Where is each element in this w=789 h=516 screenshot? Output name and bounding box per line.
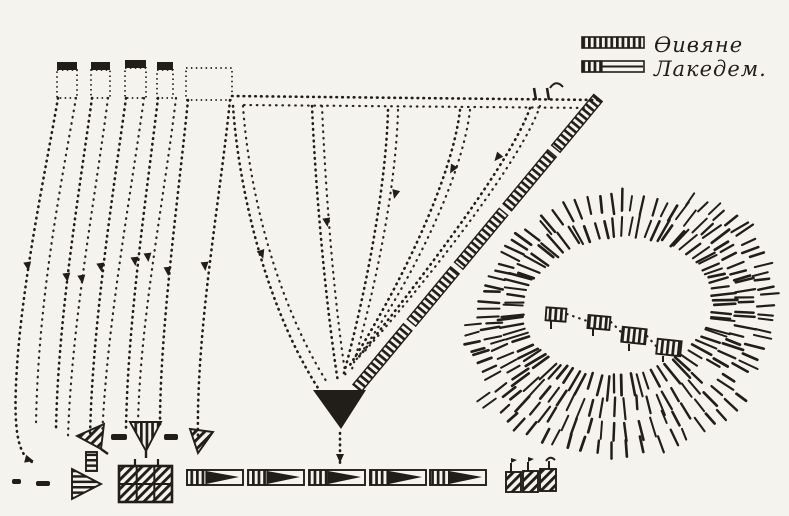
unit-arrow-right xyxy=(72,469,101,499)
hachure-stroke xyxy=(601,422,602,439)
hachure-stroke xyxy=(757,305,774,306)
hachure-stroke xyxy=(478,358,492,363)
direction-arrowhead xyxy=(322,217,331,227)
hachure-stroke xyxy=(605,221,609,238)
route-path xyxy=(243,106,328,384)
hachure-stroke xyxy=(624,423,626,441)
legend-label-thebans: Ѳивяне xyxy=(654,33,743,57)
hachure-stroke xyxy=(568,434,572,447)
hachure-stroke xyxy=(552,430,560,444)
hachure-stroke xyxy=(571,419,577,435)
hachure-stroke xyxy=(671,430,678,446)
route-path xyxy=(312,106,338,382)
hachure-stroke xyxy=(657,395,665,415)
hachure-stroke xyxy=(712,293,736,296)
hachure-stroke xyxy=(575,200,582,219)
attack-column-triangle xyxy=(313,390,366,429)
hachure-stroke xyxy=(465,332,479,336)
hill-unit-block xyxy=(621,327,646,344)
route-path xyxy=(322,106,346,378)
legend-item-thebans: Ѳивяне xyxy=(582,33,743,57)
unit-triangle-middle xyxy=(130,422,161,451)
hachure-stroke xyxy=(714,304,735,305)
hachure-stroke xyxy=(647,397,651,414)
hachure-stroke xyxy=(709,203,720,214)
hachure-stroke xyxy=(597,376,602,396)
hachure-stroke xyxy=(692,373,702,383)
route-path xyxy=(198,100,230,438)
hachure-stroke xyxy=(735,312,753,313)
hachure-stroke xyxy=(682,384,692,397)
direction-arrowhead xyxy=(390,189,400,200)
hachure-stroke xyxy=(710,277,728,282)
legend-item-lacedaemonians: Лакедем. xyxy=(582,57,767,81)
hachure-stroke xyxy=(671,388,678,401)
hachure-stroke xyxy=(501,359,516,367)
hachure-stroke xyxy=(742,239,755,245)
hachure-stroke xyxy=(725,399,737,410)
hachure-stroke xyxy=(653,199,658,216)
hachure-stroke xyxy=(717,410,726,420)
hachure-stroke xyxy=(651,370,660,387)
hachure-stroke xyxy=(516,396,530,411)
unit-dash xyxy=(36,481,50,486)
hachure-stroke xyxy=(636,396,637,410)
hachure-stroke xyxy=(658,436,664,452)
flagged-square xyxy=(540,469,556,491)
camp-cap xyxy=(57,62,77,70)
hachure-stroke xyxy=(735,289,755,292)
route-path xyxy=(102,98,144,440)
battle-map-figure: Ѳивяне Лакедем. xyxy=(0,0,789,516)
route-path xyxy=(16,98,58,462)
hachure-stroke xyxy=(580,437,585,450)
hill-unit-link xyxy=(647,336,656,346)
route-squiggle xyxy=(550,83,563,88)
hachure-stroke xyxy=(735,325,756,329)
direction-arrowhead xyxy=(143,253,152,263)
hachure-stroke xyxy=(662,392,672,409)
direction-arrowhead xyxy=(201,262,210,272)
hachure-stroke xyxy=(525,230,539,241)
direction-arrowhead xyxy=(491,152,503,164)
hill-hachures xyxy=(465,189,779,459)
route-path xyxy=(56,98,92,430)
hachure-stroke xyxy=(629,217,633,235)
camp-square xyxy=(157,70,173,98)
hachure-stroke xyxy=(614,423,615,440)
hachure-stroke xyxy=(588,197,592,214)
hachure-stroke xyxy=(689,350,702,358)
route-path xyxy=(90,98,126,438)
direction-arrowhead xyxy=(24,455,35,465)
hachure-stroke xyxy=(614,398,615,417)
hachure-stroke xyxy=(483,366,496,372)
hachure-stroke xyxy=(598,441,599,453)
hachure-stroke xyxy=(742,247,758,253)
hachure-stroke xyxy=(548,408,556,422)
hachure-stroke xyxy=(730,270,745,274)
hachure-stroke xyxy=(684,210,696,225)
flag xyxy=(528,457,534,462)
hachure-stroke xyxy=(672,412,679,426)
hachure-stroke xyxy=(750,253,764,257)
hachure-stroke xyxy=(657,366,666,380)
hachure-stroke xyxy=(630,196,632,210)
hachure-stroke xyxy=(507,294,524,297)
hachure-stroke xyxy=(486,323,502,324)
hachure-stroke xyxy=(730,333,744,337)
hachure-stroke xyxy=(527,422,536,434)
hill-unit-block xyxy=(656,339,681,356)
hachure-stroke xyxy=(492,344,507,351)
camp-square xyxy=(91,70,110,98)
hachure-stroke xyxy=(549,388,559,402)
hachure-stroke xyxy=(621,217,622,236)
hachure-stroke xyxy=(718,380,734,390)
hachure-stroke xyxy=(508,413,517,421)
hachure-stroke xyxy=(563,202,573,221)
route-path xyxy=(233,106,318,388)
left-march-routes xyxy=(16,98,230,465)
hachure-stroke xyxy=(636,215,640,238)
hachure-stroke xyxy=(704,392,717,405)
hachure-stroke xyxy=(682,429,686,440)
hachure-stroke xyxy=(743,354,757,360)
hachure-stroke xyxy=(607,376,609,400)
unit-grid-block xyxy=(119,459,172,502)
hachure-stroke xyxy=(489,276,505,280)
hachure-stroke xyxy=(589,400,593,416)
hachure-stroke xyxy=(504,305,523,306)
unit-dash xyxy=(12,479,21,484)
camp-square xyxy=(125,68,146,98)
wedge-unit xyxy=(430,470,486,485)
hachure-stroke xyxy=(477,316,498,317)
hachure-stroke xyxy=(758,314,773,315)
hachure-stroke xyxy=(661,203,668,216)
wedge-unit xyxy=(370,470,426,485)
hachure-stroke xyxy=(477,393,489,402)
hachure-stroke xyxy=(465,341,480,344)
hachure-stroke xyxy=(723,253,736,260)
hachure-stroke xyxy=(755,263,773,267)
hachure-stroke xyxy=(626,440,627,456)
battle-line-segment xyxy=(552,94,603,152)
hachure-stroke xyxy=(702,337,720,343)
start-camp-squares xyxy=(57,60,232,100)
hachure-stroke xyxy=(540,387,550,399)
route-path xyxy=(36,98,76,425)
hachure-stroke xyxy=(695,418,705,431)
hachure-stroke xyxy=(713,211,723,220)
hachure-stroke xyxy=(759,319,773,321)
legend-swatch-thebans xyxy=(582,37,644,48)
hachure-stroke xyxy=(588,373,593,389)
hachure-stroke xyxy=(712,386,723,395)
hachure-stroke xyxy=(621,375,622,395)
hachure-stroke xyxy=(496,271,510,274)
hachure-stroke xyxy=(500,324,523,328)
hachure-stroke xyxy=(501,405,509,413)
legend: Ѳивяне Лакедем. xyxy=(582,33,767,81)
hachure-stroke xyxy=(595,223,600,238)
hachure-stroke xyxy=(640,197,644,215)
hachure-stroke xyxy=(739,302,754,303)
hachure-stroke xyxy=(518,264,540,273)
camp-cap xyxy=(157,62,173,70)
hachure-stroke xyxy=(706,414,715,424)
battle-line-segment xyxy=(455,208,508,269)
hachure-stroke xyxy=(507,366,519,373)
hill-unit-block xyxy=(587,315,610,330)
hachure-stroke xyxy=(643,373,648,389)
hachure-stroke xyxy=(650,418,656,437)
hachure-stroke xyxy=(498,353,514,359)
direction-arrowhead xyxy=(336,454,344,463)
hachure-stroke xyxy=(725,216,737,225)
hachure-stroke xyxy=(567,393,575,410)
legend-swatch-lacedaemonians-hatch xyxy=(582,61,602,72)
hachure-stroke xyxy=(491,340,504,344)
hachure-stroke xyxy=(542,429,549,443)
hachure-stroke xyxy=(737,394,747,401)
bottom-left-units xyxy=(12,422,213,502)
hachure-stroke xyxy=(735,316,755,317)
hachure-stroke xyxy=(689,381,700,394)
hachure-stroke xyxy=(737,225,754,236)
attack-column xyxy=(313,390,366,466)
hachure-stroke xyxy=(600,196,602,212)
hachure-stroke xyxy=(631,373,635,395)
hachure-stroke xyxy=(505,246,524,255)
unit-dash xyxy=(111,434,127,440)
scanned-figure: Ѳивяне Лакедем. xyxy=(0,0,789,516)
battle-line-segment xyxy=(353,324,412,392)
hachure-stroke xyxy=(681,404,690,419)
hachure-stroke xyxy=(465,324,481,326)
route-path xyxy=(160,100,188,425)
hachure-stroke xyxy=(518,345,533,352)
route-path xyxy=(344,110,388,373)
wedge-unit xyxy=(248,470,304,485)
hachure-stroke xyxy=(485,286,502,290)
hachure-stroke xyxy=(753,272,768,276)
hachure-stroke xyxy=(712,312,731,314)
hachure-stroke xyxy=(686,244,700,254)
hachure-stroke xyxy=(718,351,735,359)
hachure-stroke xyxy=(576,399,584,419)
unit-dash xyxy=(164,434,178,440)
hachure-stroke xyxy=(728,262,744,268)
hachure-stroke xyxy=(496,383,507,391)
hill-unit-link xyxy=(611,322,621,332)
hachure-stroke xyxy=(481,327,499,330)
hachure-stroke xyxy=(502,252,520,261)
camp-rectangle-large xyxy=(186,68,232,100)
flagged-square xyxy=(506,472,521,492)
route-path xyxy=(352,110,398,369)
hachure-stroke xyxy=(637,374,643,396)
hachure-stroke xyxy=(698,202,708,211)
hill-units xyxy=(546,307,682,362)
hachure-stroke xyxy=(485,336,502,339)
route-tick xyxy=(547,88,549,100)
hachure-stroke xyxy=(600,399,603,418)
hachure-stroke xyxy=(557,391,566,405)
wedge-unit xyxy=(309,470,365,485)
flagged-square xyxy=(523,471,538,492)
hachure-stroke xyxy=(499,264,513,268)
hachure-stroke xyxy=(645,221,651,237)
hachure-stroke xyxy=(754,335,771,339)
hachure-stroke xyxy=(485,372,500,380)
unit-tail xyxy=(101,449,108,454)
hachure-stroke xyxy=(755,279,769,281)
hachure-stroke xyxy=(505,279,528,285)
legend-label-lacedaemonians: Лакедем. xyxy=(653,57,767,81)
bottom-wedge-units xyxy=(187,470,486,485)
wedge-unit xyxy=(187,470,243,485)
horizontal-approach-route xyxy=(232,83,600,108)
hachure-stroke xyxy=(612,219,614,237)
hachure-stroke xyxy=(686,193,694,205)
hachure-stroke xyxy=(761,293,779,294)
hachure-stroke xyxy=(745,344,764,349)
battle-line-segment xyxy=(503,150,556,211)
hachure-stroke xyxy=(584,226,590,241)
hachure-stroke xyxy=(588,419,592,432)
hachure-stroke xyxy=(651,221,660,240)
hachure-stroke xyxy=(530,403,540,415)
unit-small-bar xyxy=(86,452,97,471)
hachure-stroke xyxy=(483,399,496,408)
hachure-stroke xyxy=(557,233,569,249)
hachure-stroke xyxy=(758,287,773,290)
hachure-stroke xyxy=(510,391,520,399)
flag xyxy=(546,458,555,461)
hachure-stroke xyxy=(623,398,625,419)
hachure-stroke xyxy=(505,287,526,290)
hachure-stroke xyxy=(709,274,725,277)
hill-unit-block xyxy=(546,307,567,321)
camp-cap xyxy=(125,60,146,68)
hachure-stroke xyxy=(479,301,500,303)
unit-triangle-right xyxy=(190,429,213,453)
hachure-stroke xyxy=(712,286,729,288)
hachure-stroke xyxy=(756,329,771,333)
hachure-stroke xyxy=(611,194,614,214)
direction-arrowhead xyxy=(164,267,173,277)
hachure-stroke xyxy=(671,231,684,246)
hachure-stroke xyxy=(695,400,704,412)
hachure-stroke xyxy=(553,210,563,224)
flagged-squares-unit xyxy=(506,457,556,492)
hill-unit-link xyxy=(567,314,587,321)
hachure-stroke xyxy=(514,419,525,431)
camp-cap xyxy=(91,62,110,70)
flag xyxy=(511,458,517,463)
camp-square xyxy=(57,70,77,98)
hachure-stroke xyxy=(562,416,569,431)
hachure-stroke xyxy=(723,374,734,381)
hachure-stroke xyxy=(733,363,748,372)
hachure-stroke xyxy=(712,230,729,243)
battle-line-segment xyxy=(407,267,459,326)
